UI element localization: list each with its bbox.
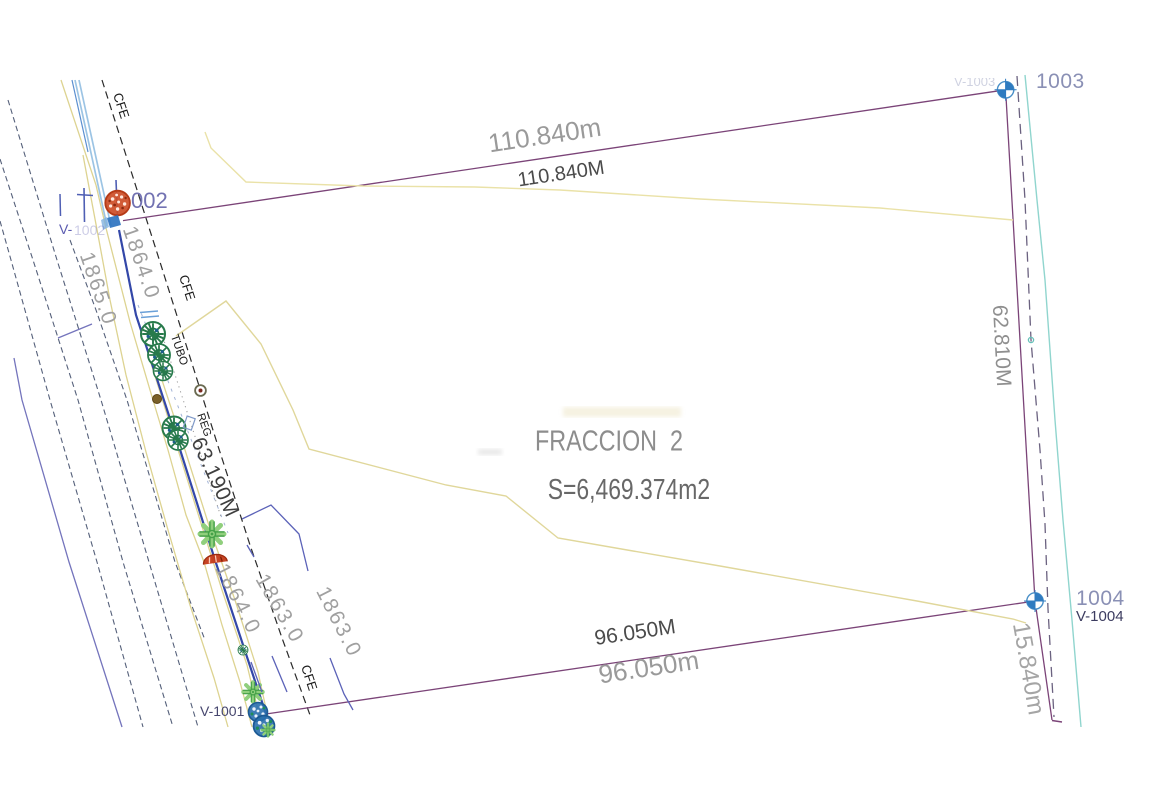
svg-text:V-1001: V-1001: [200, 703, 245, 719]
svg-text:S=6,469.374m2: S=6,469.374m2: [548, 472, 710, 505]
svg-text:62.810M: 62.810M: [988, 304, 1015, 387]
svg-text:V-: V-: [59, 221, 73, 237]
svg-text:FRACCION 2: FRACCION 2: [535, 424, 683, 457]
svg-text:1004: 1004: [1076, 587, 1125, 610]
svg-text:1003: 1003: [1036, 70, 1085, 93]
svg-text:002: 002: [131, 188, 168, 213]
svg-text:1002: 1002: [74, 222, 105, 238]
svg-text:V-1004: V-1004: [1076, 608, 1124, 625]
